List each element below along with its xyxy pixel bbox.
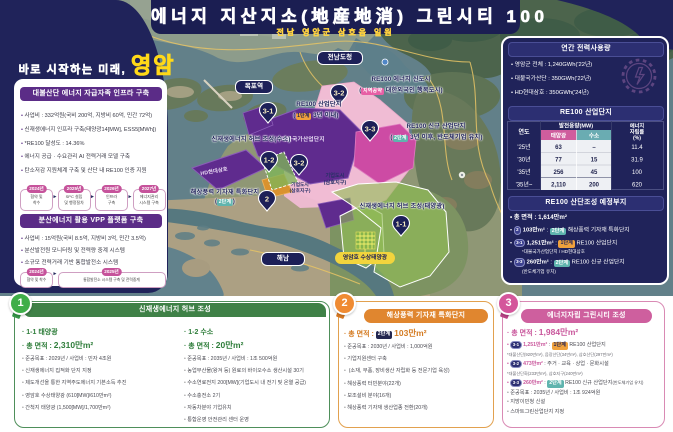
svg-text:연도: 연도 bbox=[518, 128, 530, 136]
svg-text:3-2: 3-2 bbox=[294, 159, 305, 168]
svg-text:발전용량(MW): 발전용량(MW) bbox=[559, 122, 593, 130]
svg-text:1-1: 1-1 bbox=[396, 220, 407, 229]
svg-text:11.4: 11.4 bbox=[631, 145, 643, 151]
svg-text:태양광: 태양광 bbox=[551, 132, 567, 140]
svg-text:3-3: 3-3 bbox=[365, 125, 376, 134]
svg-text:'35년: '35년 bbox=[517, 168, 530, 176]
svg-text:2: 2 bbox=[265, 195, 269, 204]
svg-text:3-2: 3-2 bbox=[334, 89, 345, 98]
svg-text:256: 256 bbox=[553, 170, 564, 176]
svg-text:'25년: '25년 bbox=[517, 143, 530, 151]
svg-text:(%): (%) bbox=[633, 136, 641, 142]
svg-text:15: 15 bbox=[591, 158, 598, 164]
svg-text:'30년: '30년 bbox=[517, 156, 530, 164]
svg-text:자립률: 자립률 bbox=[630, 128, 645, 136]
svg-text:100: 100 bbox=[632, 170, 643, 176]
svg-text:620: 620 bbox=[632, 183, 643, 189]
svg-text:1-2: 1-2 bbox=[264, 156, 275, 165]
svg-text:200: 200 bbox=[589, 183, 600, 189]
svg-text:'35년~: '35년~ bbox=[516, 181, 533, 189]
svg-text:63: 63 bbox=[555, 145, 562, 151]
svg-text:77: 77 bbox=[555, 158, 562, 164]
svg-text:수소: 수소 bbox=[589, 133, 599, 140]
svg-text:31.9: 31.9 bbox=[631, 158, 643, 164]
svg-text:3-1: 3-1 bbox=[263, 107, 274, 116]
svg-text:2,110: 2,110 bbox=[551, 183, 566, 189]
svg-text:에너지: 에너지 bbox=[630, 122, 645, 130]
svg-text:45: 45 bbox=[591, 170, 598, 176]
